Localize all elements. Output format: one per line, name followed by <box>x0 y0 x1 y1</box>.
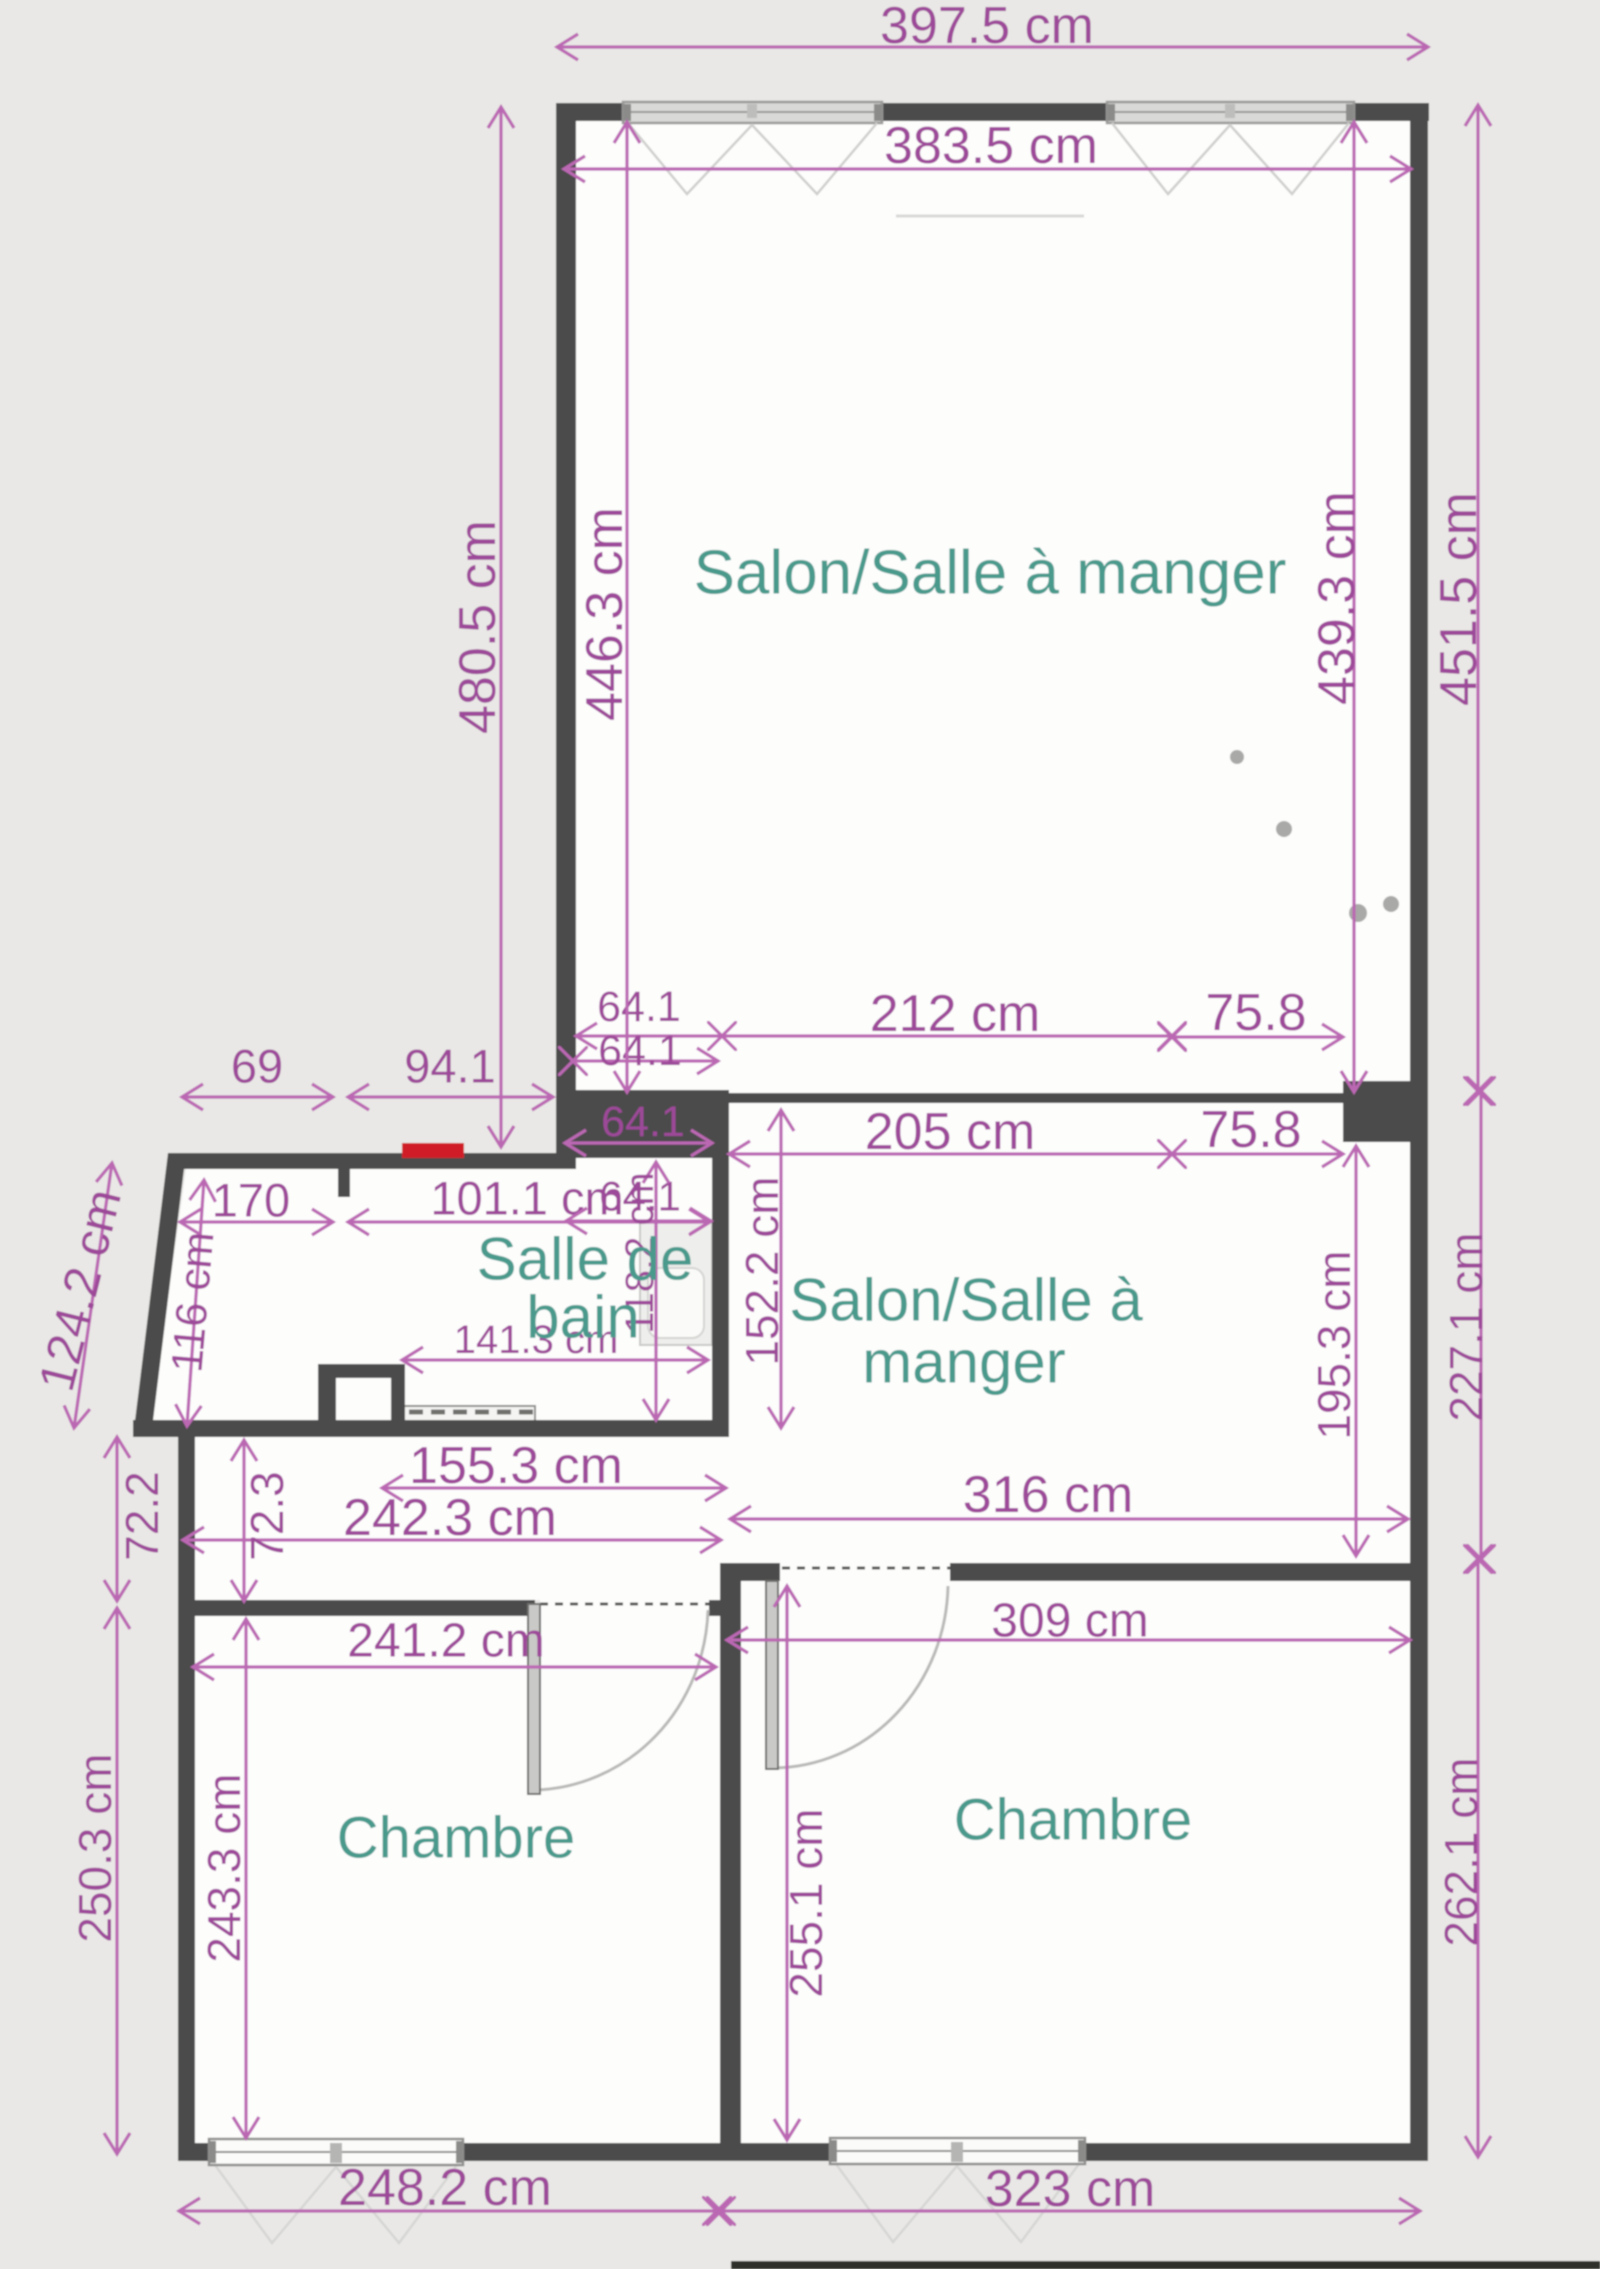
svg-text:Salon/Salle à: Salon/Salle à <box>789 1267 1143 1334</box>
svg-text:manger: manger <box>862 1329 1065 1396</box>
svg-text:242.3 cm: 242.3 cm <box>343 1489 557 1547</box>
svg-text:170: 170 <box>212 1174 290 1227</box>
svg-text:397.5 cm: 397.5 cm <box>880 0 1094 55</box>
svg-text:255.1 cm: 255.1 cm <box>780 1808 832 1997</box>
svg-text:309 cm: 309 cm <box>991 1595 1148 1648</box>
svg-text:383.5 cm: 383.5 cm <box>884 117 1098 175</box>
svg-text:451.5 cm: 451.5 cm <box>1430 492 1488 706</box>
svg-text:Chambre: Chambre <box>954 1788 1193 1853</box>
svg-text:152.2 cm: 152.2 cm <box>736 1176 788 1365</box>
svg-text:75.8: 75.8 <box>1200 1101 1301 1159</box>
svg-text:323 cm: 323 cm <box>985 2160 1156 2218</box>
svg-text:195.3 cm: 195.3 cm <box>1308 1250 1360 1439</box>
svg-text:72.3: 72.3 <box>241 1471 293 1561</box>
svg-text:316 cm: 316 cm <box>963 1466 1134 1524</box>
svg-text:248.2 cm: 248.2 cm <box>338 2159 552 2217</box>
svg-text:64.1: 64.1 <box>598 1027 682 1075</box>
svg-text:212 cm: 212 cm <box>870 985 1041 1043</box>
svg-text:205 cm: 205 cm <box>865 1103 1036 1161</box>
svg-text:101.1 cm: 101.1 cm <box>430 1172 623 1225</box>
svg-text:227.1 cm: 227.1 cm <box>1440 1232 1492 1421</box>
svg-text:69: 69 <box>231 1040 283 1093</box>
svg-text:64.1: 64.1 <box>597 983 681 1031</box>
svg-text:446.3 cm: 446.3 cm <box>576 507 634 721</box>
svg-text:72.2: 72.2 <box>116 1471 168 1561</box>
svg-text:243.3 cm: 243.3 cm <box>198 1773 250 1962</box>
svg-text:250.3 cm: 250.3 cm <box>69 1753 121 1942</box>
svg-text:Salle de: Salle de <box>477 1226 694 1293</box>
svg-text:155.3 cm: 155.3 cm <box>409 1437 623 1495</box>
svg-text:262.1 cm: 262.1 cm <box>1435 1757 1487 1946</box>
svg-text:439.3 cm: 439.3 cm <box>1308 491 1366 705</box>
svg-text:75.8: 75.8 <box>1205 984 1306 1042</box>
svg-text:bain: bain <box>526 1284 639 1351</box>
svg-text:Salon/Salle à manger: Salon/Salle à manger <box>694 539 1287 608</box>
svg-text:Chambre: Chambre <box>337 1806 576 1871</box>
svg-text:94.1: 94.1 <box>404 1040 495 1093</box>
svg-text:480.5 cm: 480.5 cm <box>449 520 507 734</box>
svg-text:64.1: 64.1 <box>601 1098 685 1146</box>
svg-text:241.2 cm: 241.2 cm <box>347 1615 544 1668</box>
